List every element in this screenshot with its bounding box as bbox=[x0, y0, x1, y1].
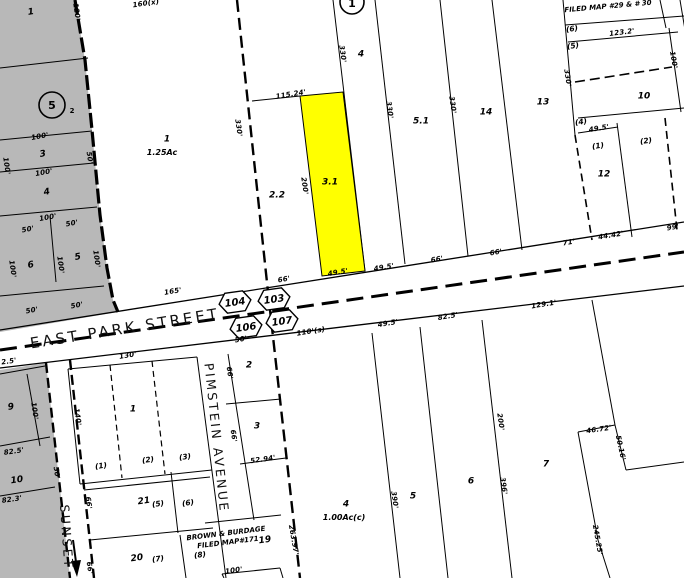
street-badge-103[interactable]: 103 bbox=[257, 287, 291, 311]
parcel-number: 4 bbox=[43, 188, 51, 198]
sublot-number: (5) bbox=[566, 41, 579, 50]
dimension-label: 50' bbox=[85, 151, 94, 164]
dimension-label: 120' bbox=[71, 3, 80, 21]
circle-5-label: 5 bbox=[48, 99, 56, 112]
parcel-number: 3 bbox=[254, 423, 260, 432]
dimension-label: 396' bbox=[498, 477, 507, 495]
dimension-label: 330' bbox=[562, 69, 571, 87]
parcel-area: 1.25Ac bbox=[147, 149, 177, 157]
parcel-number: 12 bbox=[598, 171, 611, 180]
parcel-number: 1 bbox=[164, 136, 170, 145]
dimension-label: 390' bbox=[389, 491, 398, 509]
parcel-number: 14 bbox=[480, 109, 493, 118]
sublot-number: (1) bbox=[591, 141, 604, 150]
sublot-number: (2) bbox=[639, 136, 652, 145]
street-label-sunset: SUNSET bbox=[58, 504, 75, 570]
sublot-number: (3) bbox=[178, 452, 191, 461]
parcel-number: 2.2 bbox=[269, 192, 285, 201]
parcel-number: 6 bbox=[468, 478, 474, 487]
parcel-number: 2 bbox=[246, 362, 252, 371]
sublot-number: (6) bbox=[565, 24, 578, 33]
dimension-label: 200' bbox=[495, 413, 504, 431]
parcel-area: 1.00Ac(c) bbox=[323, 514, 365, 522]
dimension-label: 50' bbox=[52, 466, 61, 479]
dimension-label: 140' bbox=[72, 408, 81, 426]
dimension-label: 66' bbox=[225, 366, 234, 379]
circle-marker-1[interactable]: 1 bbox=[340, 0, 364, 14]
dimension-label: 100' bbox=[91, 250, 100, 268]
dimension-label: 100' bbox=[7, 260, 16, 278]
sublot-number: (8) bbox=[193, 550, 206, 559]
circle-1-label: 1 bbox=[348, 0, 356, 10]
parcel-number: 13 bbox=[537, 99, 550, 108]
dimension-label: 66' bbox=[229, 429, 238, 442]
dimension-label: 330' bbox=[337, 45, 346, 63]
sublot-number: (5) bbox=[151, 499, 164, 508]
parcel-number: 10 bbox=[10, 476, 24, 487]
dimension-label: 100' bbox=[29, 402, 38, 420]
dimension-label: 100' bbox=[1, 157, 10, 175]
parcel-number: 9 bbox=[7, 403, 14, 413]
dimension-label: 100' bbox=[55, 256, 64, 274]
sublot-number: (6) bbox=[181, 498, 194, 507]
gray-zone bbox=[0, 0, 118, 578]
dimension-label: 66' bbox=[85, 561, 94, 574]
parcel-number: 1 bbox=[27, 8, 34, 18]
street-badge-104[interactable]: 104 bbox=[218, 290, 252, 314]
dimension-label: 330' bbox=[447, 96, 456, 114]
parcel-number: 21 bbox=[137, 497, 151, 508]
dimension-label: 330' bbox=[384, 101, 393, 119]
sublot-number: (2) bbox=[141, 455, 154, 464]
parcel-number: 4 bbox=[343, 501, 349, 510]
parcel-number: 5 bbox=[410, 493, 416, 502]
parcel-map-svg: 5 2 1 104 103 106 107 bbox=[0, 0, 684, 578]
parcel-number: 19 bbox=[258, 536, 272, 547]
sublot-number: (4) bbox=[574, 117, 587, 126]
sublot-number: (7) bbox=[151, 554, 164, 563]
parcel-number: 20 bbox=[130, 554, 144, 565]
parcel-number: 5.1 bbox=[413, 118, 429, 127]
dimension-label: 330' bbox=[233, 119, 242, 137]
dimension-label: 200' bbox=[299, 177, 308, 195]
parcel-number: 7 bbox=[543, 461, 549, 470]
parcel-number: 1 bbox=[130, 406, 136, 415]
tax-parcel-map: 5 2 1 104 103 106 107 EAST PA bbox=[0, 0, 684, 578]
parcel-number: 5 bbox=[74, 253, 82, 263]
parcel-number: 10 bbox=[638, 93, 651, 102]
parcel-number: 3.1 bbox=[322, 179, 338, 188]
circle-5-sub: 2 bbox=[70, 107, 75, 115]
parcel-number: 3 bbox=[39, 150, 47, 160]
parcel-number: 6 bbox=[27, 261, 35, 271]
sublot-number: (1) bbox=[94, 461, 107, 470]
parcel-number: 4 bbox=[358, 51, 364, 60]
dimension-label: 66' bbox=[84, 496, 93, 509]
